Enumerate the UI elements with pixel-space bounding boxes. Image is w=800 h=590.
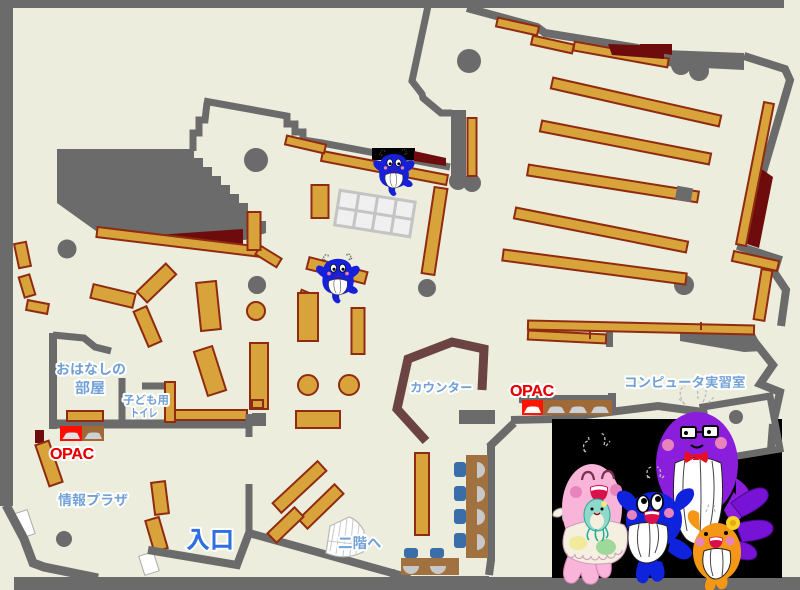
svg-text:OPAC: OPAC xyxy=(50,446,95,463)
svg-text:OPAC: OPAC xyxy=(510,383,555,400)
